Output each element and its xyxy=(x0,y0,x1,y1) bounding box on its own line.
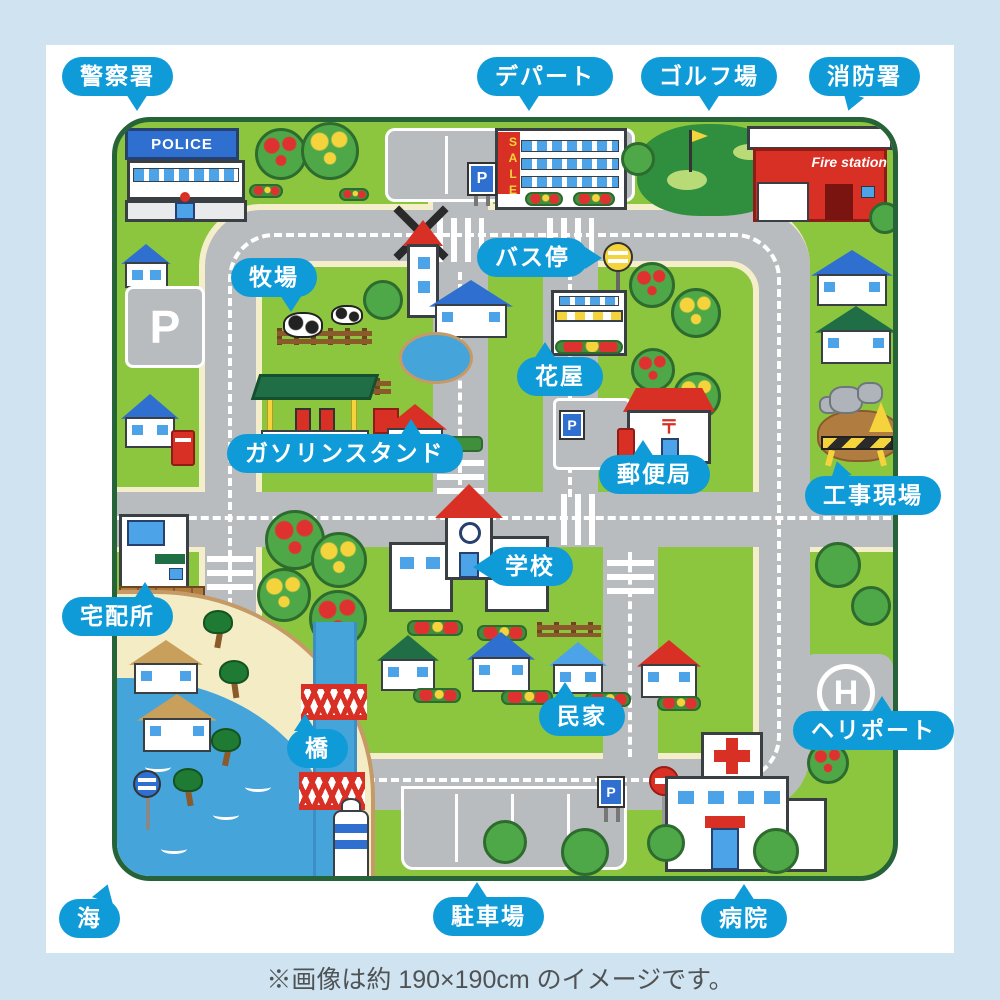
wave-icon xyxy=(245,782,271,792)
parking-sign-p: P xyxy=(469,164,495,194)
flower-box-icon xyxy=(525,192,563,206)
label-delivery-center: 宅配所 xyxy=(62,597,173,636)
house-body xyxy=(817,274,888,306)
label-police-station: 警察署 xyxy=(62,57,173,96)
label-text: 警察署 xyxy=(80,63,155,89)
flower-shop-icon xyxy=(551,284,627,356)
label-ranch: 牧場 xyxy=(231,258,317,297)
police-sign-text: POLICE xyxy=(125,128,239,160)
label-tail xyxy=(126,94,148,111)
house-roof xyxy=(637,640,701,667)
hospital-door xyxy=(711,828,739,870)
sign-leg xyxy=(604,806,608,822)
house-icon xyxy=(637,640,701,698)
play-mat-illustration: POLICE P xyxy=(112,117,898,881)
label-text: ガソリンスタンド xyxy=(245,440,445,466)
label-text: 牧場 xyxy=(249,264,299,290)
sign-leg xyxy=(616,806,620,822)
label-text: ヘリポート xyxy=(811,717,936,743)
fire-station-window xyxy=(861,186,875,198)
post-office-roof xyxy=(623,388,715,412)
house-roof xyxy=(549,642,607,666)
flower-bush-icon xyxy=(413,688,461,703)
palm-tree-icon xyxy=(219,660,253,700)
label-tail xyxy=(466,882,488,899)
sign-stripe xyxy=(138,786,156,790)
gas-pump xyxy=(295,408,311,432)
label-text: 民家 xyxy=(557,703,607,729)
sign-disc xyxy=(133,770,161,798)
tree-icon xyxy=(363,280,403,320)
fruit-tree-icon xyxy=(301,122,359,180)
fire-station-roof xyxy=(747,126,893,150)
label-tail xyxy=(554,682,576,699)
wave-icon xyxy=(213,810,239,820)
label-gas-station: ガソリンスタンド xyxy=(227,434,463,473)
construction-site-icon xyxy=(811,380,898,468)
hospital-awning xyxy=(705,816,745,828)
house-body xyxy=(381,659,434,691)
house-body xyxy=(134,663,198,694)
store-windows xyxy=(521,176,619,188)
delivery-awning xyxy=(155,554,185,564)
label-text: 工事現場 xyxy=(823,482,923,508)
flower-bed-icon xyxy=(407,620,463,636)
police-station-icon: POLICE xyxy=(125,126,249,222)
label-post-office: 郵便局 xyxy=(599,455,710,494)
fruit-tree-icon xyxy=(629,262,675,308)
fence-icon xyxy=(537,622,601,637)
label-construction-site: 工事現場 xyxy=(805,476,941,515)
house-roof xyxy=(377,635,439,661)
store-windows xyxy=(521,140,619,152)
house-roof xyxy=(129,640,203,665)
fruit-tree-icon xyxy=(631,348,675,392)
police-door xyxy=(175,202,195,220)
house-roof xyxy=(137,694,217,721)
tree-icon xyxy=(869,202,898,234)
school-clock xyxy=(459,522,481,544)
label-text: 橋 xyxy=(305,735,330,761)
gas-pump xyxy=(319,408,335,432)
golf-sand xyxy=(667,170,707,190)
parking-sign-p: P xyxy=(561,412,583,438)
label-tail xyxy=(698,94,720,111)
school-wing xyxy=(389,542,453,612)
parking-sign-p: P xyxy=(599,778,623,806)
sign-leg xyxy=(486,192,490,206)
road-sign-icon xyxy=(133,770,165,832)
postbox-icon xyxy=(171,422,195,466)
palm-tree-icon xyxy=(203,610,237,650)
label-tail xyxy=(585,247,602,269)
house-icon xyxy=(467,632,535,692)
house-icon xyxy=(815,306,897,364)
sign-pole xyxy=(146,798,150,830)
sale-banner: SALE xyxy=(498,132,520,194)
house-body xyxy=(641,664,696,698)
label-bridge: 橋 xyxy=(287,729,348,768)
size-caption: ※画像は約 190×190cm のイメージです。 xyxy=(0,960,1000,996)
lighthouse-body xyxy=(333,810,369,881)
flower-display xyxy=(555,340,623,354)
police-windows xyxy=(133,168,239,182)
label-tail xyxy=(518,94,540,111)
label-hospital: 病院 xyxy=(701,899,787,938)
fire-station-porch xyxy=(757,182,809,222)
label-flower-shop: 花屋 xyxy=(517,357,603,396)
pond-icon xyxy=(399,332,473,384)
house-body xyxy=(125,417,175,448)
house-body xyxy=(143,718,212,752)
palm-tree-icon xyxy=(173,768,207,808)
crosswalk xyxy=(561,494,603,545)
house-icon xyxy=(811,250,893,306)
school-roof xyxy=(435,484,503,518)
crosswalk xyxy=(607,552,654,594)
lighthouse-icon xyxy=(327,798,375,881)
label-tail xyxy=(134,582,156,599)
hospital-cross-sign xyxy=(701,732,763,780)
house-roof xyxy=(467,632,535,660)
label-text: 学校 xyxy=(505,553,555,579)
palm-tree-icon xyxy=(211,728,245,768)
tree-icon xyxy=(753,828,799,874)
delivery-window xyxy=(127,520,165,546)
label-text: デパート xyxy=(495,63,595,89)
house-roof xyxy=(811,250,893,276)
parking-line xyxy=(445,136,448,194)
label-parking-lot: 駐車場 xyxy=(433,897,544,936)
fruit-tree-icon xyxy=(257,568,311,622)
flower-bush-icon xyxy=(657,696,701,711)
store-windows xyxy=(521,158,619,170)
tree-icon xyxy=(851,586,891,626)
palm-leaves xyxy=(211,728,241,752)
label-text: バス停 xyxy=(495,244,570,270)
label-text: ゴルフ場 xyxy=(659,63,759,89)
label-text: 駐車場 xyxy=(451,903,526,929)
label-text: 宅配所 xyxy=(80,603,155,629)
label-tail xyxy=(632,440,654,457)
fruit-tree-icon xyxy=(255,128,307,180)
label-sea: 海 xyxy=(59,899,120,938)
barn-roof xyxy=(429,280,513,307)
bus-sign-disc xyxy=(603,242,633,272)
fruit-tree-icon xyxy=(671,288,721,338)
parking-sign-icon: P xyxy=(469,164,497,208)
tree-icon xyxy=(483,820,527,864)
label-text: 郵便局 xyxy=(617,461,692,487)
post-mark: 〒 xyxy=(651,414,687,436)
palm-leaves xyxy=(203,610,233,634)
house-body xyxy=(821,330,892,364)
bus-sign-stripe xyxy=(608,251,628,255)
label-golf-course: ゴルフ場 xyxy=(641,57,777,96)
flower-bush-icon xyxy=(249,184,283,198)
barn-house-icon xyxy=(429,280,513,338)
label-school: 学校 xyxy=(487,547,573,586)
label-tail xyxy=(733,884,755,901)
gas-canopy xyxy=(251,374,379,400)
label-tail xyxy=(280,295,302,312)
department-store-icon: SALE xyxy=(495,122,627,210)
label-bus-stop: バス停 xyxy=(477,238,588,277)
label-text: 消防署 xyxy=(827,63,902,89)
fire-station-door xyxy=(825,184,853,220)
product-image: POLICE P xyxy=(0,0,1000,1000)
cow-icon xyxy=(331,305,363,325)
hospital-icon xyxy=(665,732,829,878)
police-lamp xyxy=(180,192,190,202)
cow-icon xyxy=(283,312,323,338)
label-text: 病院 xyxy=(719,905,769,931)
postbox-slot xyxy=(175,438,191,442)
label-fire-station: 消防署 xyxy=(809,57,920,96)
postbox-body xyxy=(171,430,195,466)
house-icon xyxy=(377,635,439,691)
house-icon xyxy=(121,244,171,288)
palm-leaves xyxy=(173,768,203,792)
fire-station-sign: Fire station xyxy=(761,154,887,172)
house-roof xyxy=(815,306,897,333)
flower-bush-icon xyxy=(339,188,369,201)
label-text: 海 xyxy=(77,905,102,931)
shop-windows xyxy=(559,296,619,306)
tree-icon xyxy=(561,828,609,876)
label-tail xyxy=(400,419,422,436)
barricade-bar xyxy=(821,436,893,450)
delivery-window-small xyxy=(169,568,183,580)
tree-icon xyxy=(815,542,861,588)
fruit-tree-icon xyxy=(311,532,367,588)
parking-area-left: P xyxy=(125,286,205,368)
beach-house-icon xyxy=(137,694,217,752)
label-heliport: ヘリポート xyxy=(793,711,954,750)
label-tail xyxy=(871,696,893,713)
label-text: 花屋 xyxy=(535,363,585,389)
parking-sign-icon: P xyxy=(599,778,627,824)
label-department-store: デパート xyxy=(477,57,613,96)
house-body xyxy=(472,657,530,692)
tree-icon xyxy=(621,142,655,176)
sign-stripe xyxy=(138,778,156,782)
tree-icon xyxy=(647,824,685,862)
flower-box-icon xyxy=(573,192,615,206)
label-tail xyxy=(473,556,490,578)
house-body xyxy=(125,262,168,288)
rock-icon xyxy=(857,382,883,404)
house-roof xyxy=(121,394,179,419)
label-private-houses: 民家 xyxy=(539,697,625,736)
beach-house-icon xyxy=(129,640,203,694)
golf-flag-pole xyxy=(689,130,692,172)
bus-sign-stripe xyxy=(608,259,628,263)
shop-awning xyxy=(555,310,623,322)
palm-leaves xyxy=(219,660,249,684)
label-tail xyxy=(294,714,316,731)
parking-line xyxy=(455,794,458,862)
sign-leg xyxy=(474,192,478,206)
crosswalk xyxy=(207,550,253,590)
house-roof xyxy=(121,244,171,264)
wave-icon xyxy=(161,844,187,854)
label-tail xyxy=(534,342,556,359)
